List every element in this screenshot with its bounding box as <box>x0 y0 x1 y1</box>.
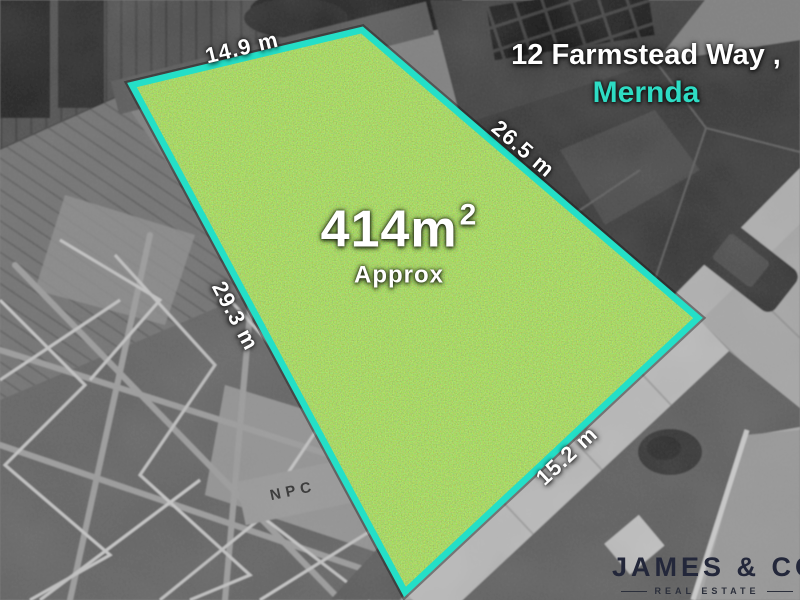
listing-photo: NPC 14.9 m 26.5 m 29.3 m 15.2 m 414m2 Ap… <box>0 0 800 600</box>
aerial-photo-background <box>0 0 800 600</box>
